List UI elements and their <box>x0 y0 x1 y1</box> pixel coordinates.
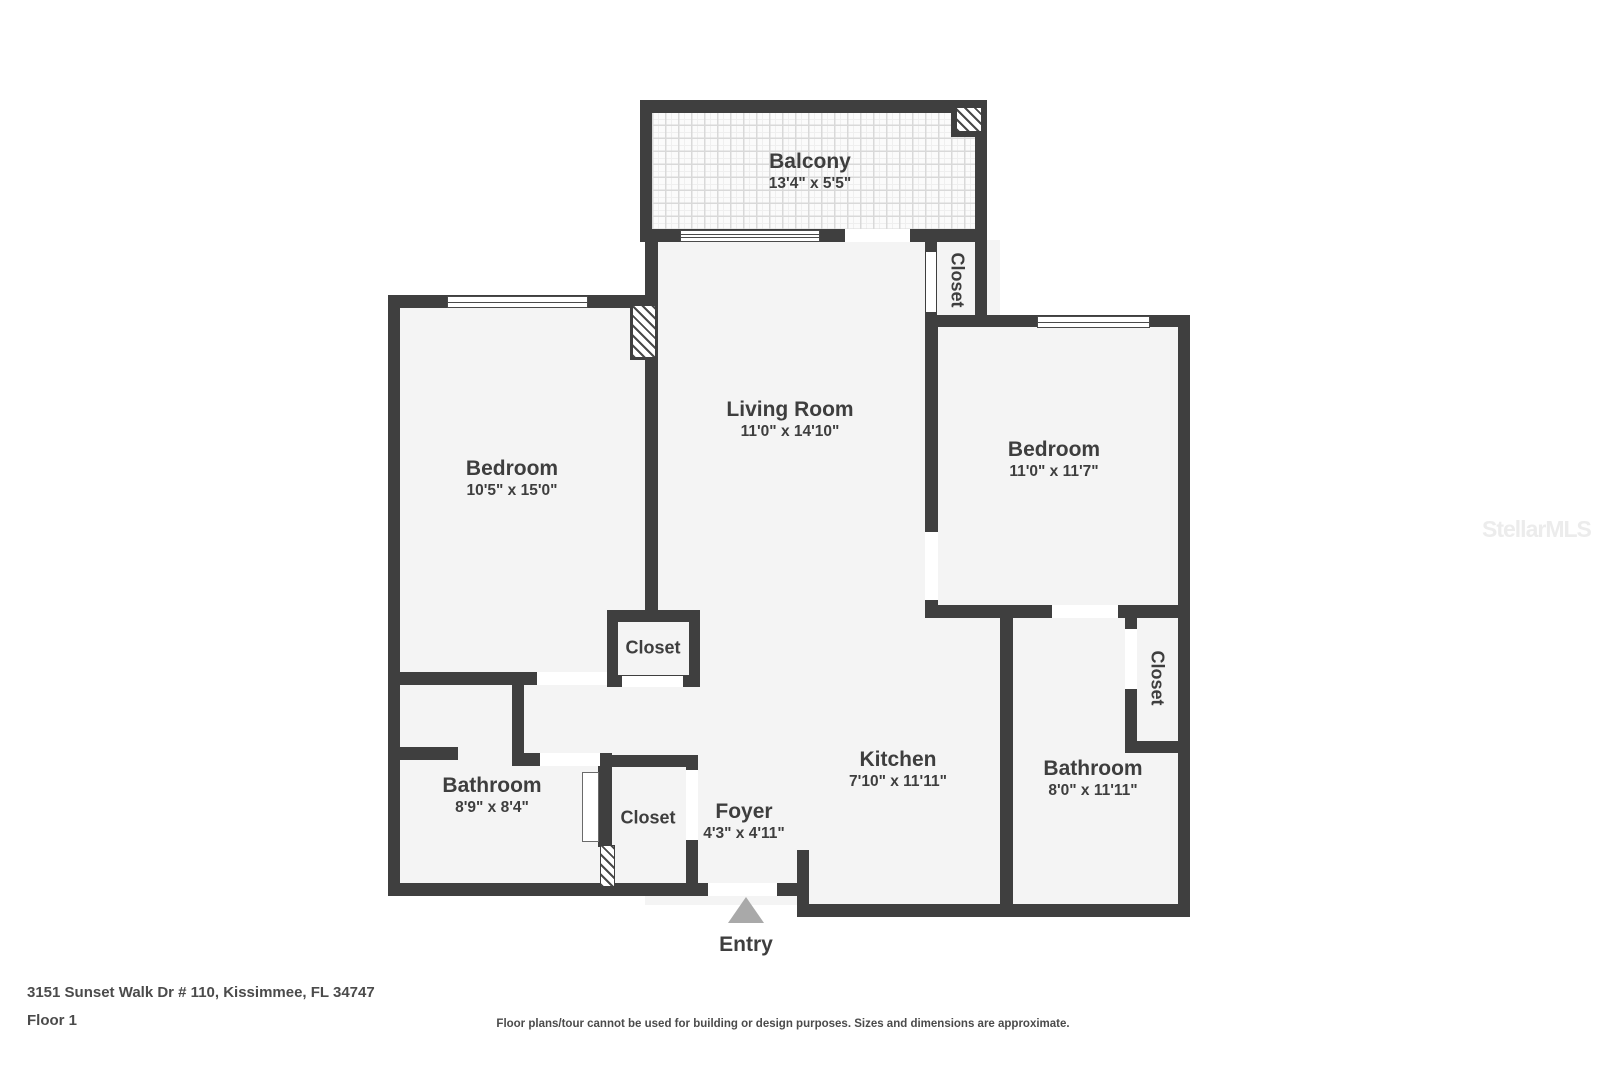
label-bedroom-left: Bedroom 10'5" x 15'0" <box>466 457 558 502</box>
sliding-door-window <box>680 230 820 242</box>
door-opening <box>1125 629 1137 689</box>
label-closet-foyer: Closet <box>620 808 675 829</box>
label-entry: Entry <box>719 933 773 956</box>
window <box>1037 316 1150 328</box>
label-living-room: Living Room 11'0" x 14'10" <box>726 398 853 443</box>
label-closet-top: Closet <box>947 252 968 307</box>
wall <box>640 100 652 242</box>
wall <box>600 755 697 767</box>
label-bathroom-left: Bathroom 8'9" x 8'4" <box>442 774 541 819</box>
wall-chase-hatch <box>630 303 658 360</box>
watermark: StellarMLS <box>1482 516 1591 543</box>
label-bathroom-right: Bathroom 8'0" x 11'11" <box>1043 757 1142 802</box>
floor-plan: Balcony 13'4" x 5'5" Living Room 11'0" x… <box>0 0 1600 1066</box>
door-opening <box>537 672 607 685</box>
wall <box>640 100 987 113</box>
door-opening <box>708 883 777 896</box>
label-kitchen: Kitchen 7'10" x 11'11" <box>849 748 947 793</box>
floor-label: Floor 1 <box>27 1012 77 1029</box>
entry-arrow-icon <box>728 897 764 923</box>
label-closet-right: Closet <box>1147 650 1168 705</box>
shower-door <box>582 772 599 842</box>
address-text: 3151 Sunset Walk Dr # 110, Kissimmee, FL… <box>27 984 375 1001</box>
wall <box>388 295 400 896</box>
wall <box>388 747 458 760</box>
wall <box>1125 741 1190 753</box>
label-balcony: Balcony 13'4" x 5'5" <box>769 150 851 195</box>
wall <box>607 610 700 622</box>
plumbing-chase-hatch <box>600 845 615 887</box>
wall <box>598 753 612 847</box>
door-opening <box>686 770 698 840</box>
label-closet-mid: Closet <box>625 638 680 659</box>
door-opening <box>540 753 600 766</box>
wall <box>645 229 658 620</box>
ac-unit-icon <box>957 108 981 131</box>
disclaimer-text: Floor plans/tour cannot be used for buil… <box>496 1018 1069 1030</box>
door-opening <box>622 676 683 687</box>
wall <box>797 904 1190 917</box>
door-opening <box>925 532 938 600</box>
label-bedroom-right: Bedroom 11'0" x 11'7" <box>1008 438 1100 483</box>
window <box>447 296 588 308</box>
door-opening <box>845 229 910 242</box>
label-foyer: Foyer 4'3" x 4'11" <box>703 800 785 845</box>
door-opening <box>1052 605 1118 618</box>
door-opening <box>926 252 936 312</box>
wall <box>1000 612 1013 917</box>
